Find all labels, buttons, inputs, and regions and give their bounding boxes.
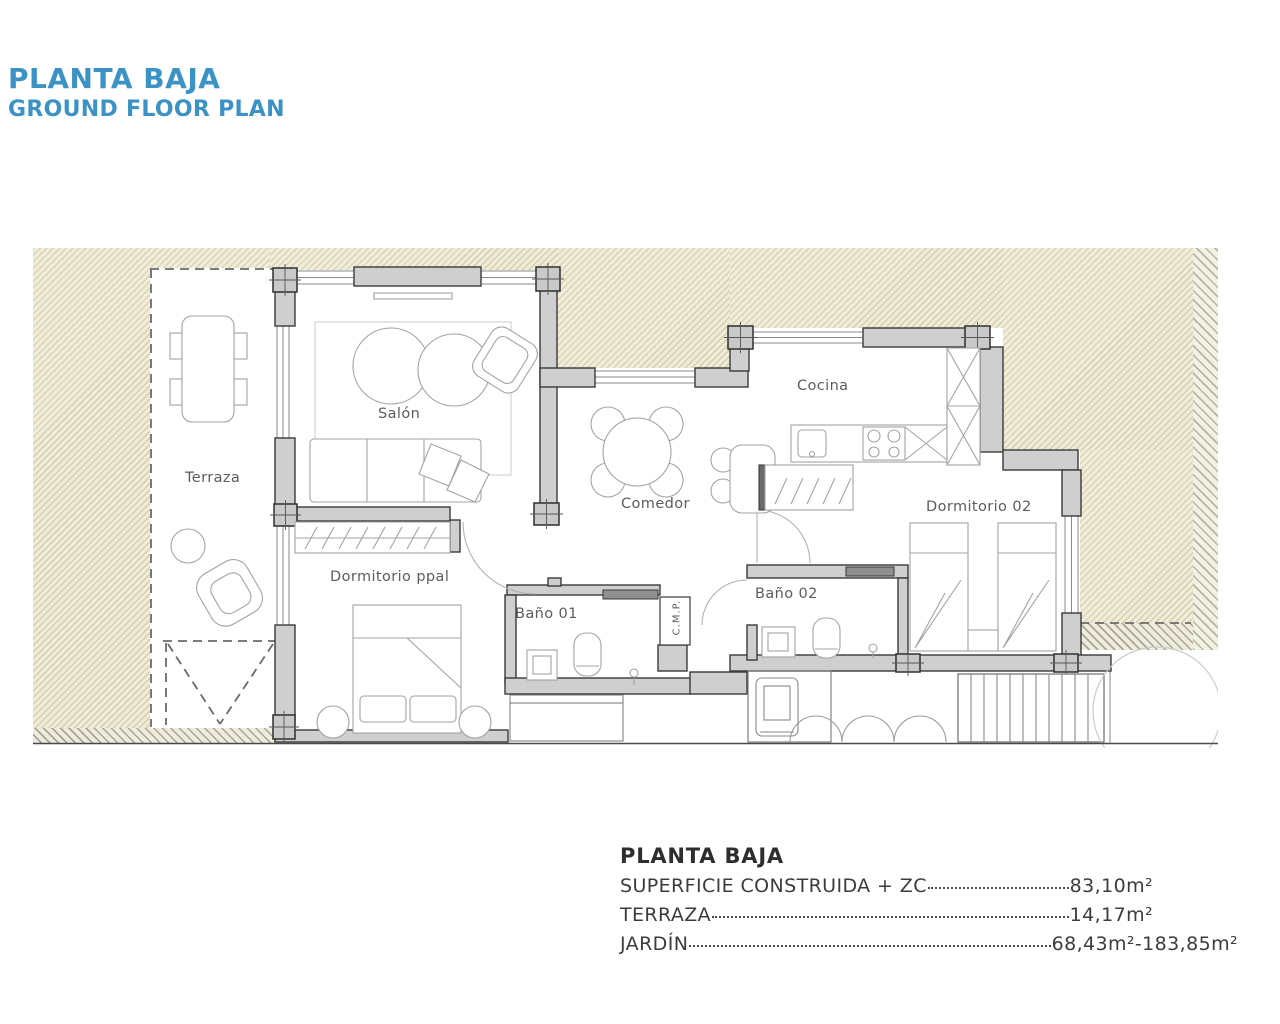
kitchen-furniture <box>711 348 980 513</box>
summary-label: TERRAZA <box>620 904 711 926</box>
dotted-leader <box>712 916 1069 918</box>
floor-plan: Terraza Salón Comedor Cocina Dormitorio … <box>33 248 1218 748</box>
label-terraza: Terraza <box>185 470 240 486</box>
laundry-area <box>748 671 831 742</box>
summary-value: 14,17m² <box>1070 904 1153 926</box>
page-header: PLANTA BAJA GROUND FLOOR PLAN <box>8 64 285 122</box>
carport-circle <box>1093 647 1218 748</box>
dotted-leader <box>689 945 1050 947</box>
summary-value: 68,43m²-183,85m² <box>1052 933 1238 955</box>
floor-plan-page: PLANTA BAJA GROUND FLOOR PLAN <box>0 0 1280 1024</box>
label-comedor: Comedor <box>621 496 690 512</box>
label-cmp: C.M.P. <box>671 600 682 636</box>
label-dormitorio-ppal: Dormitorio ppal <box>330 569 449 585</box>
bathroom02-fixtures <box>762 618 877 658</box>
salon-furniture <box>310 293 542 502</box>
bedroom02-furniture <box>910 523 1056 651</box>
label-cocina: Cocina <box>797 378 848 394</box>
summary-row-garden: JARDÍN 68,43m²-183,85m² <box>620 933 1238 955</box>
summary-value: 83,10m² <box>1070 875 1153 897</box>
bifold-door-arcs <box>790 716 946 742</box>
summary-label: SUPERFICIE CONSTRUIDA + ZC <box>620 875 927 897</box>
dotted-leader <box>928 887 1069 889</box>
comedor-furniture <box>591 407 683 497</box>
summary-row-built-area: SUPERFICIE CONSTRUIDA + ZC 83,10m² <box>620 875 1153 897</box>
label-dormitorio-02: Dormitorio 02 <box>926 499 1032 515</box>
page-subtitle: GROUND FLOOR PLAN <box>8 97 285 122</box>
summary-label: JARDÍN <box>620 933 688 955</box>
area-summary: PLANTA BAJA SUPERFICIE CONSTRUIDA + ZC 8… <box>620 844 1238 955</box>
page-title: PLANTA BAJA <box>8 64 285 95</box>
label-bano-02: Baño 02 <box>755 586 818 602</box>
summary-title: PLANTA BAJA <box>620 844 1238 868</box>
bathroom01-fixtures <box>527 633 638 685</box>
label-bano-01: Baño 01 <box>515 606 578 622</box>
stairs <box>958 674 1104 742</box>
summary-row-terrace: TERRAZA 14,17m² <box>620 904 1153 926</box>
master-bedroom-furniture <box>295 522 491 738</box>
light-well <box>510 695 623 741</box>
label-salon: Salón <box>378 406 420 422</box>
